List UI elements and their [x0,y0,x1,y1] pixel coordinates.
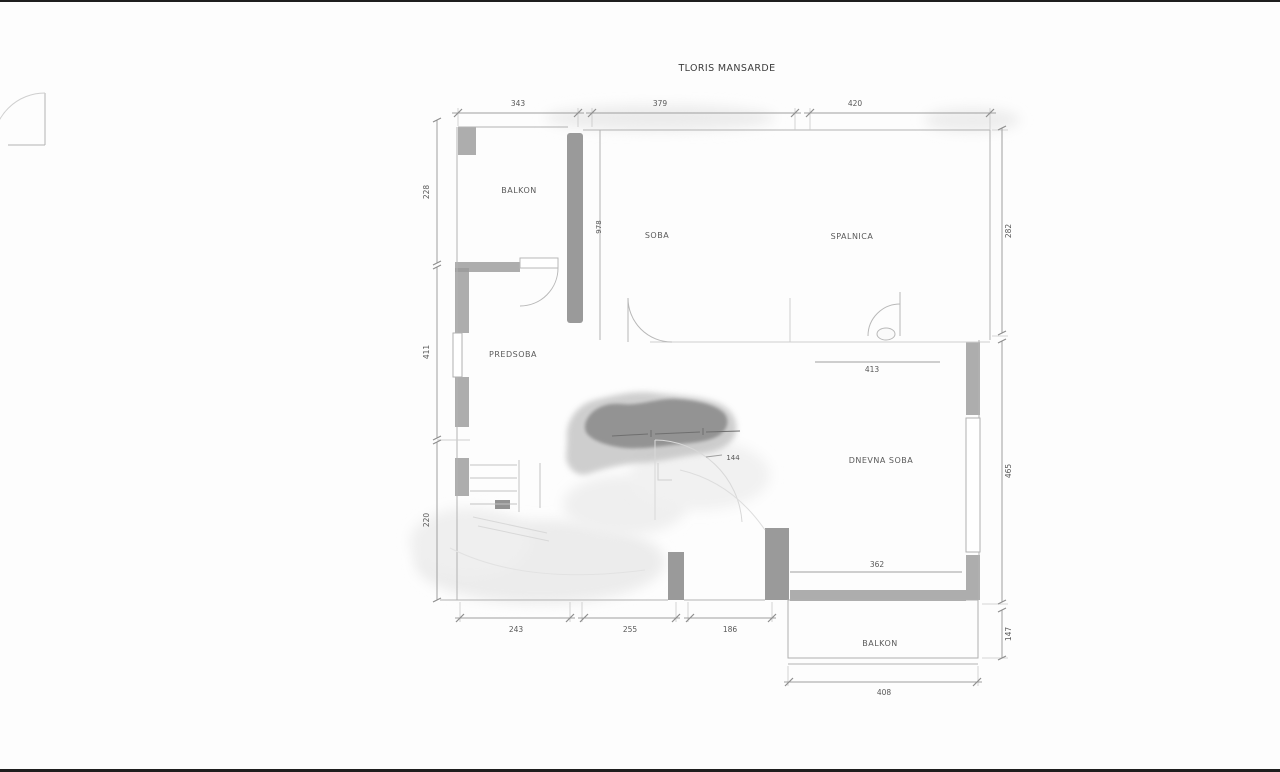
wall-corner-top-left [458,127,476,155]
dim-interior-978: 978 [595,220,603,233]
wall-balcony-top [790,590,966,601]
room-label-dnevna-soba: DNEVNA SOBA [849,456,914,465]
dim-interior-413: 413 [865,365,880,374]
dim-bottom-1: 243 [509,625,524,634]
room-label-balkon-top: BALKON [501,186,537,195]
dim-right-2: 465 [1004,464,1013,479]
floorplan-page: TLORIS MANSARDE [0,0,1280,772]
wall-door-jamb-bottom [668,552,684,600]
fixture-circle-spalnica [877,328,895,340]
dim-top-3: 420 [848,99,863,108]
window-right [966,418,980,552]
room-label-balkon-bottom: BALKON [862,639,898,648]
dim-bottom-3: 186 [723,625,738,634]
dim-right-1: 282 [1004,224,1013,239]
wall-vertical-thick [567,133,583,323]
room-label-predsoba: PREDSOBA [489,350,537,359]
dim-left-2: 411 [422,345,431,360]
dim-right-3: 147 [1004,627,1013,642]
top-edge-bar [0,0,1280,2]
dim-interior-144: 144 [726,454,740,462]
dim-top-1: 343 [511,99,526,108]
dim-balcony-width: 408 [877,688,892,697]
wall-right-upper [966,342,980,415]
room-label-soba: SOBA [645,231,669,240]
dim-interior-362: 362 [870,560,885,569]
floorplan-drawing: TLORIS MANSARDE [0,0,1280,772]
dim-left-3: 220 [422,513,431,528]
drawing-title: TLORIS MANSARDE [677,63,775,74]
wall-bottom-middle [765,528,789,600]
dim-left-1: 228 [422,185,431,200]
wall-right-lower [966,555,980,600]
dim-bottom-2: 255 [623,625,638,634]
wall-predsoba-top [455,262,520,272]
dim-top-2: 379 [653,99,668,108]
door-leaf-predsoba [520,258,558,268]
room-label-spalnica: SPALNICA [831,232,874,241]
window-left [453,333,462,377]
